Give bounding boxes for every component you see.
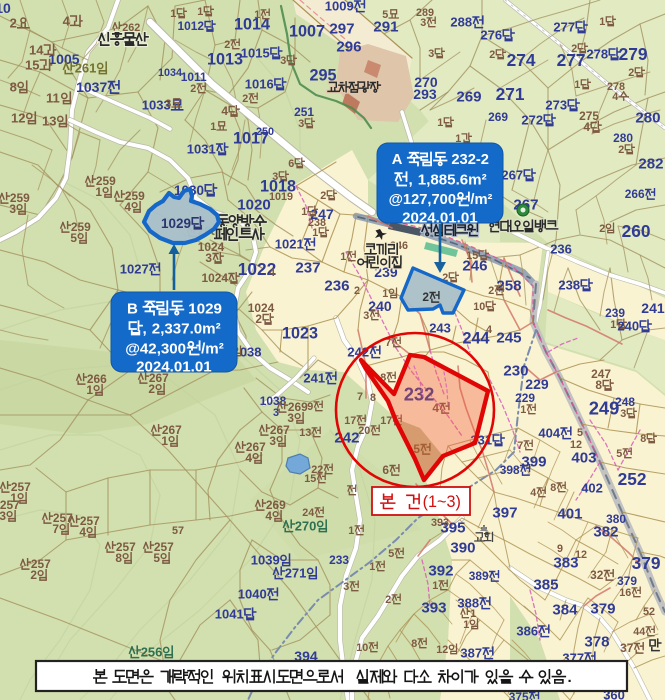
svg-text:232-2: 232-2 — [451, 152, 489, 168]
svg-text:237: 237 — [295, 259, 320, 276]
svg-text:245: 245 — [496, 329, 521, 346]
svg-text:3: 3 — [0, 509, 6, 523]
svg-text:2: 2 — [571, 43, 577, 55]
svg-text:8: 8 — [595, 378, 602, 392]
svg-text:240: 240 — [617, 319, 639, 334]
svg-text:1: 1 — [161, 434, 168, 448]
svg-text:3: 3 — [9, 202, 16, 216]
svg-text:4: 4 — [124, 200, 131, 214]
svg-text:277: 277 — [553, 20, 575, 35]
svg-text:5: 5 — [388, 548, 394, 560]
svg-text:293: 293 — [413, 86, 437, 102]
svg-text:1: 1 — [95, 185, 102, 199]
svg-text:1: 1 — [210, 121, 216, 133]
svg-text:3: 3 — [269, 434, 276, 448]
svg-text:32: 32 — [590, 568, 604, 582]
svg-text:1: 1 — [574, 79, 580, 91]
svg-text:1037: 1037 — [76, 79, 107, 95]
svg-text:3: 3 — [280, 55, 286, 67]
svg-text:392: 392 — [428, 562, 453, 579]
svg-text:273: 273 — [545, 98, 567, 113]
svg-text:17: 17 — [380, 415, 392, 427]
svg-text:379: 379 — [632, 553, 661, 573]
svg-text:/m²: /m² — [470, 192, 492, 208]
svg-text:384: 384 — [552, 601, 578, 618]
svg-text:266: 266 — [625, 187, 645, 201]
svg-text:386: 386 — [516, 624, 538, 639]
svg-text:390: 390 — [450, 539, 475, 556]
svg-text:380: 380 — [606, 512, 626, 526]
svg-text:2: 2 — [224, 39, 230, 51]
svg-text:233: 233 — [329, 553, 349, 567]
svg-text:10: 10 — [356, 642, 368, 654]
svg-text:393: 393 — [421, 599, 446, 616]
svg-text:397: 397 — [492, 504, 517, 521]
svg-text:4: 4 — [245, 451, 252, 465]
svg-text:1029: 1029 — [161, 216, 191, 231]
svg-text:7: 7 — [357, 391, 363, 403]
svg-text:274: 274 — [507, 50, 536, 70]
svg-text:5: 5 — [382, 9, 388, 21]
svg-text:4: 4 — [530, 487, 536, 499]
svg-text:3: 3 — [298, 118, 304, 130]
svg-text:270: 270 — [295, 519, 317, 534]
svg-text:2: 2 — [489, 49, 495, 61]
svg-text:1: 1 — [520, 404, 526, 416]
svg-text:276: 276 — [480, 28, 502, 43]
svg-text:1: 1 — [170, 8, 176, 20]
svg-text:2: 2 — [385, 594, 391, 606]
svg-text:3: 3 — [343, 581, 349, 593]
svg-text:3: 3 — [205, 251, 212, 265]
svg-text:8: 8 — [370, 392, 376, 404]
svg-text:1039: 1039 — [251, 553, 280, 568]
svg-text:3: 3 — [620, 408, 626, 420]
svg-text:250: 250 — [256, 126, 274, 138]
svg-text:2: 2 — [10, 16, 17, 31]
svg-text:4: 4 — [486, 324, 492, 336]
svg-text:1007: 1007 — [289, 23, 325, 41]
svg-text:12: 12 — [436, 644, 448, 656]
svg-text:57: 57 — [172, 525, 184, 537]
svg-text:1029: 1029 — [188, 300, 222, 317]
svg-text:12: 12 — [575, 549, 587, 561]
svg-text:272: 272 — [521, 113, 543, 128]
svg-text:1012: 1012 — [178, 19, 205, 33]
svg-text:282: 282 — [638, 155, 663, 172]
svg-text:1: 1 — [348, 525, 354, 537]
svg-text:1: 1 — [86, 383, 93, 397]
svg-text:4: 4 — [63, 14, 71, 29]
svg-text:236: 236 — [324, 277, 349, 294]
svg-text:378: 378 — [584, 633, 609, 650]
svg-text:401: 401 — [557, 505, 582, 522]
svg-text:52: 52 — [643, 606, 655, 618]
svg-text:(1~3): (1~3) — [423, 493, 461, 511]
svg-text:4: 4 — [583, 120, 590, 134]
svg-text:267: 267 — [501, 168, 523, 183]
svg-text:389: 389 — [469, 569, 489, 583]
svg-text:2: 2 — [190, 83, 196, 95]
svg-text:1: 1 — [432, 580, 438, 592]
svg-text:4: 4 — [265, 509, 272, 523]
svg-text:4: 4 — [79, 525, 86, 539]
svg-text:2: 2 — [618, 144, 624, 156]
svg-text:229: 229 — [525, 376, 549, 392]
svg-text:4: 4 — [612, 91, 618, 103]
svg-text:1034: 1034 — [158, 67, 182, 79]
svg-text:8: 8 — [10, 80, 17, 95]
svg-text:1040: 1040 — [238, 587, 267, 602]
svg-text:6: 6 — [288, 158, 294, 170]
svg-text:44: 44 — [633, 626, 645, 638]
svg-text:271: 271 — [496, 84, 525, 104]
svg-text:278: 278 — [586, 47, 608, 62]
svg-text:8: 8 — [550, 482, 556, 494]
svg-text:3: 3 — [428, 48, 434, 60]
svg-text:256: 256 — [141, 645, 163, 660]
svg-text:1: 1 — [197, 6, 203, 18]
svg-text:1019: 1019 — [269, 191, 293, 203]
svg-text:1041: 1041 — [215, 607, 244, 622]
svg-text:1: 1 — [463, 619, 469, 631]
svg-text:B: B — [127, 300, 138, 317]
svg-text:269: 269 — [488, 110, 508, 124]
svg-text:10: 10 — [473, 301, 485, 313]
svg-text:404: 404 — [538, 426, 560, 441]
svg-text:1: 1 — [369, 561, 375, 573]
svg-text:2: 2 — [422, 290, 429, 304]
svg-text:5: 5 — [153, 551, 160, 565]
svg-text:1: 1 — [301, 206, 307, 218]
svg-text:1: 1 — [610, 319, 616, 331]
svg-text:@42,300: @42,300 — [125, 340, 186, 357]
svg-text:24: 24 — [302, 507, 314, 519]
svg-text:1: 1 — [340, 251, 346, 263]
svg-text:2024.01.01: 2024.01.01 — [402, 209, 478, 226]
svg-text:15: 15 — [304, 473, 316, 485]
svg-text:3: 3 — [165, 98, 171, 110]
svg-text:260: 260 — [622, 221, 651, 241]
svg-text:5: 5 — [577, 427, 583, 439]
svg-text:8: 8 — [411, 638, 417, 650]
svg-text:398: 398 — [500, 463, 520, 477]
svg-text:402: 402 — [581, 481, 603, 496]
svg-text:,: , — [143, 320, 147, 337]
svg-text:13: 13 — [42, 114, 56, 129]
svg-text:12: 12 — [11, 111, 25, 126]
svg-text:1015: 1015 — [241, 46, 270, 61]
svg-text:385: 385 — [533, 576, 558, 593]
svg-text:261: 261 — [75, 61, 97, 76]
svg-text:14: 14 — [29, 43, 44, 58]
svg-text:2: 2 — [242, 93, 248, 105]
svg-text:279: 279 — [619, 44, 648, 64]
svg-text:387: 387 — [460, 646, 482, 661]
svg-text:,: , — [409, 171, 413, 188]
svg-text:16: 16 — [619, 587, 631, 599]
svg-text:243: 243 — [429, 321, 451, 336]
svg-text:236: 236 — [550, 242, 572, 257]
svg-text:393: 393 — [431, 517, 449, 529]
svg-text:.: . — [568, 669, 572, 686]
svg-text:1031: 1031 — [187, 142, 216, 157]
svg-text:4: 4 — [221, 104, 228, 118]
svg-text:297: 297 — [329, 20, 354, 37]
svg-text:2: 2 — [30, 568, 37, 582]
svg-text:1024: 1024 — [202, 271, 229, 285]
svg-text:2: 2 — [488, 285, 494, 297]
svg-text:1009: 1009 — [325, 0, 354, 14]
svg-text:17: 17 — [344, 415, 356, 427]
svg-text:1,885.6m²: 1,885.6m² — [418, 171, 487, 188]
svg-text:296: 296 — [336, 38, 361, 55]
svg-text:1021: 1021 — [275, 237, 304, 252]
svg-text:10: 10 — [0, 0, 11, 16]
svg-text:13: 13 — [299, 427, 311, 439]
svg-text:2: 2 — [320, 190, 326, 202]
svg-text:8: 8 — [640, 433, 646, 445]
svg-text:A: A — [392, 152, 403, 168]
svg-text:291: 291 — [373, 18, 398, 35]
svg-text:280: 280 — [635, 109, 660, 126]
svg-text:1023: 1023 — [282, 325, 318, 343]
svg-text:1013: 1013 — [207, 51, 243, 69]
svg-text:/m²: /m² — [201, 340, 224, 357]
svg-text:8: 8 — [115, 551, 122, 565]
svg-text:1: 1 — [599, 16, 605, 28]
svg-text:1: 1 — [382, 288, 388, 300]
svg-text:269: 269 — [456, 88, 481, 105]
svg-text:2: 2 — [255, 312, 262, 326]
svg-text:1016: 1016 — [245, 77, 274, 92]
svg-text:1020: 1020 — [237, 196, 271, 213]
svg-text:403: 403 — [571, 449, 596, 466]
svg-text:5: 5 — [616, 448, 622, 460]
svg-text:20: 20 — [358, 425, 370, 437]
svg-text:2024.01.01: 2024.01.01 — [136, 358, 212, 375]
svg-text:399: 399 — [521, 453, 546, 470]
svg-text:241: 241 — [303, 371, 325, 386]
svg-text:2: 2 — [628, 67, 634, 79]
svg-text:15: 15 — [466, 250, 478, 262]
svg-text:3: 3 — [420, 17, 426, 29]
svg-text:9: 9 — [307, 401, 313, 413]
svg-text:379: 379 — [590, 600, 615, 617]
svg-text:2,337.0m²: 2,337.0m² — [152, 320, 221, 337]
svg-text:9: 9 — [557, 543, 563, 555]
svg-text:1: 1 — [437, 117, 443, 129]
svg-text:2: 2 — [148, 382, 155, 396]
svg-text:37: 37 — [620, 641, 634, 655]
svg-text:238: 238 — [558, 278, 580, 293]
svg-text:2: 2 — [354, 285, 360, 297]
svg-text:6: 6 — [382, 463, 389, 477]
svg-text:3: 3 — [363, 310, 369, 322]
svg-text:241: 241 — [641, 300, 665, 316]
svg-text:7: 7 — [52, 522, 59, 536]
svg-text:1: 1 — [254, 9, 260, 21]
svg-text:1: 1 — [312, 227, 318, 239]
svg-text:2: 2 — [599, 223, 605, 235]
svg-text:288: 288 — [450, 15, 472, 30]
svg-text:5: 5 — [70, 231, 77, 245]
svg-text:1027: 1027 — [120, 262, 149, 277]
svg-text:252: 252 — [618, 469, 647, 489]
svg-text:4: 4 — [269, 267, 275, 279]
svg-text:12: 12 — [570, 439, 582, 451]
svg-text:7: 7 — [517, 440, 523, 452]
svg-text:271: 271 — [285, 566, 307, 581]
svg-text:11: 11 — [46, 91, 60, 106]
svg-text:15: 15 — [25, 58, 39, 73]
svg-text:@127,700: @127,700 — [389, 192, 456, 208]
svg-text:1: 1 — [470, 608, 476, 620]
